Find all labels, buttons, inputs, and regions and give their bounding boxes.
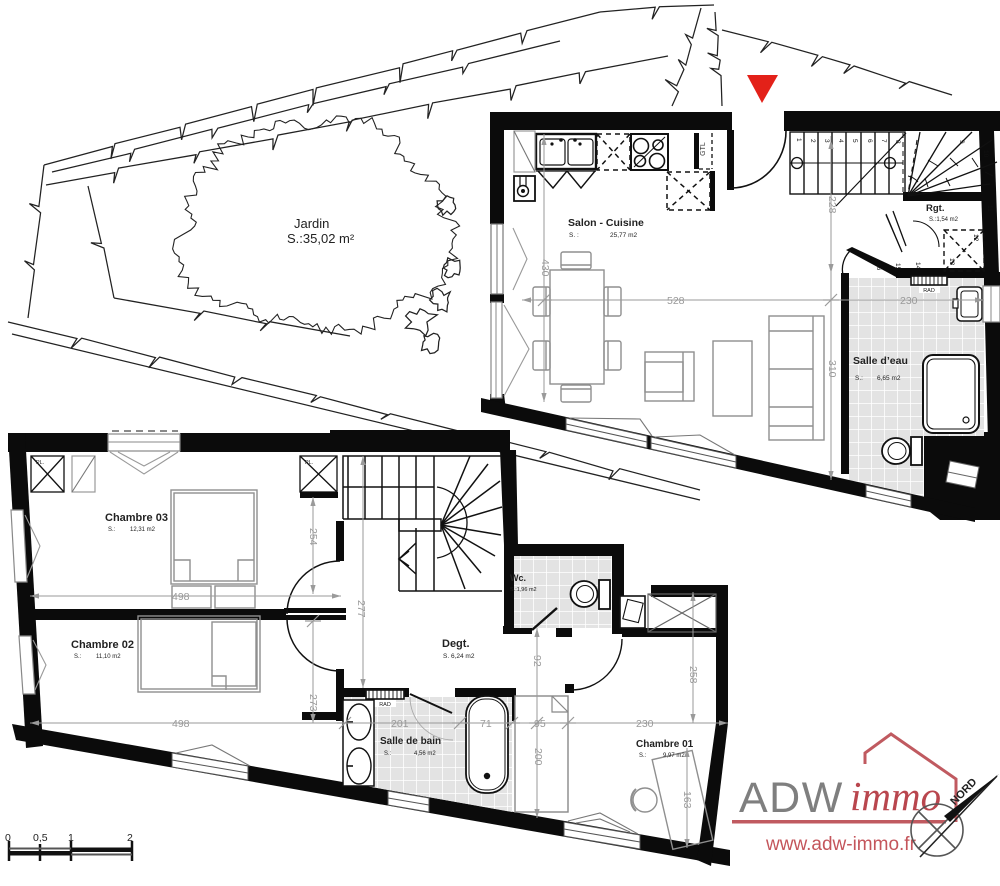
svg-text:230: 230: [900, 295, 918, 307]
svg-text:Chambre 01: Chambre 01: [636, 739, 694, 750]
svg-text:310: 310: [826, 360, 838, 378]
svg-text:14: 14: [914, 262, 921, 270]
svg-text:230: 230: [636, 718, 654, 730]
svg-text:6,65 m2: 6,65 m2: [877, 375, 901, 382]
svg-text:10: 10: [982, 150, 989, 158]
svg-text:163: 163: [681, 791, 693, 809]
svg-text:273: 273: [307, 694, 319, 712]
svg-text:528: 528: [667, 295, 685, 307]
svg-text:258: 258: [687, 666, 699, 684]
svg-text:15: 15: [894, 263, 901, 271]
svg-text:S.:1,96 m2: S.:1,96 m2: [510, 587, 537, 593]
svg-text:S.:: S.:: [108, 527, 116, 533]
svg-text:430: 430: [539, 259, 551, 277]
svg-text:Rgt.: Rgt.: [926, 203, 944, 214]
svg-text:S.:35,02 m²: S.:35,02 m²: [287, 231, 355, 246]
svg-text:Jardin: Jardin: [294, 216, 329, 231]
svg-text:228: 228: [826, 196, 838, 214]
svg-text:Wc.: Wc.: [510, 573, 526, 583]
svg-text:S.:: S.:: [384, 751, 392, 757]
svg-text:immo: immo: [850, 773, 941, 819]
svg-text:Chambre 02: Chambre 02: [71, 639, 134, 651]
svg-text:3: 3: [823, 139, 830, 143]
svg-text:RAD: RAD: [379, 702, 391, 708]
svg-text:Salle de bain: Salle de bain: [380, 736, 441, 747]
svg-text:25,77 m2: 25,77 m2: [610, 232, 637, 239]
svg-text:12,31 m2: 12,31 m2: [130, 527, 156, 533]
svg-text:S.:: S.:: [74, 654, 82, 660]
svg-text:S.:: S.:: [855, 375, 863, 382]
svg-text:Degt.: Degt.: [442, 638, 470, 650]
svg-text:9,97 m2: 9,97 m2: [663, 753, 685, 759]
svg-text:1: 1: [795, 138, 802, 142]
svg-text:71: 71: [480, 718, 492, 730]
svg-text:5: 5: [851, 139, 858, 143]
svg-text:4,56 m2: 4,56 m2: [414, 751, 436, 757]
svg-text:Salle d’eau: Salle d’eau: [853, 355, 908, 367]
svg-text:S.:: S.:: [639, 753, 647, 759]
svg-text:95: 95: [534, 718, 546, 730]
svg-text:S.:1,54 m2: S.:1,54 m2: [929, 217, 959, 223]
svg-text:www.adw-immo.fr: www.adw-immo.fr: [765, 834, 917, 855]
svg-text:Chambre 03: Chambre 03: [105, 512, 168, 524]
svg-text:498: 498: [172, 591, 190, 603]
svg-text:11,10 m2: 11,10 m2: [96, 654, 121, 660]
svg-text:11: 11: [986, 205, 993, 212]
svg-text:S. 6,24 m2: S. 6,24 m2: [443, 653, 475, 660]
svg-text:254: 254: [307, 528, 319, 546]
svg-text:498: 498: [172, 718, 190, 730]
svg-text:201: 201: [391, 718, 409, 730]
svg-text:200: 200: [532, 748, 544, 766]
svg-text:92: 92: [531, 655, 543, 667]
svg-text:PL.: PL.: [36, 460, 45, 466]
svg-text:0,5: 0,5: [33, 832, 48, 844]
svg-text:8: 8: [894, 140, 901, 144]
svg-text:2: 2: [809, 139, 816, 143]
svg-text:7: 7: [880, 139, 887, 143]
svg-text:6: 6: [866, 139, 873, 143]
svg-text:16: 16: [875, 263, 882, 271]
svg-text:13: 13: [948, 258, 955, 266]
svg-text:PL.: PL.: [305, 460, 314, 466]
svg-text:S. :: S. :: [569, 232, 579, 239]
svg-text:RAD: RAD: [923, 288, 935, 294]
svg-text:277: 277: [355, 600, 367, 618]
svg-text:4: 4: [837, 139, 844, 143]
svg-text:9: 9: [958, 140, 965, 144]
svg-text:ADW: ADW: [739, 774, 844, 822]
svg-text:GTL: GTL: [700, 142, 707, 156]
svg-text:Salon - Cuisine: Salon - Cuisine: [568, 217, 644, 229]
